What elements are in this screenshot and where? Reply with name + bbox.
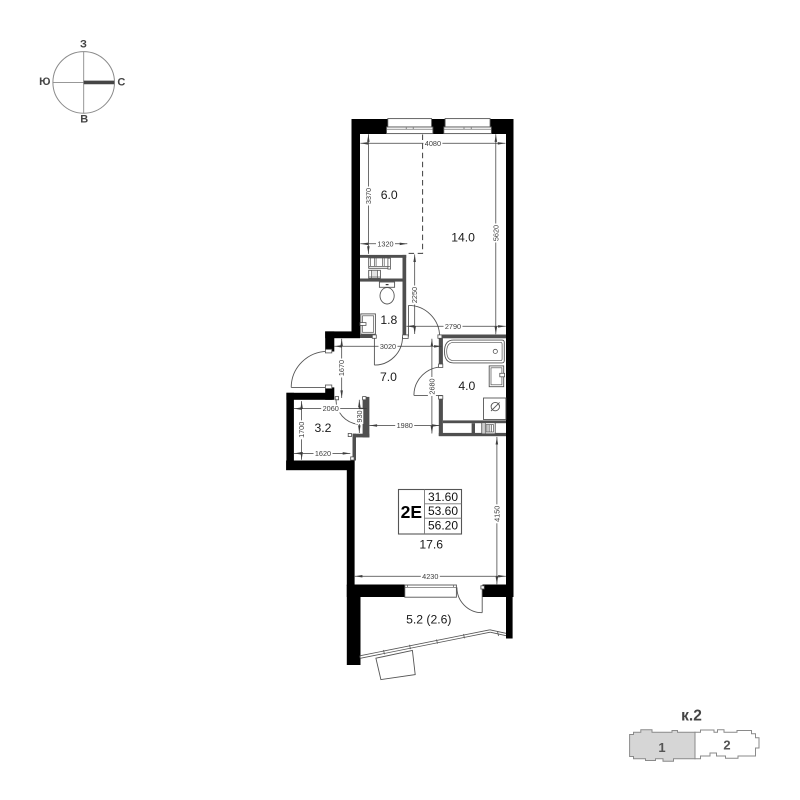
svg-text:14.0: 14.0 [451,231,475,245]
svg-text:1670: 1670 [337,360,346,376]
svg-text:3.2: 3.2 [315,421,332,435]
svg-text:2060: 2060 [323,404,339,413]
svg-text:4.0: 4.0 [458,379,475,393]
svg-text:930: 930 [355,410,364,422]
svg-text:3020: 3020 [380,342,396,351]
svg-text:4080: 4080 [425,139,441,148]
svg-text:5620: 5620 [491,225,500,241]
svg-text:53.60: 53.60 [428,504,458,518]
svg-text:17.6: 17.6 [419,538,443,552]
svg-text:4230: 4230 [422,572,438,581]
svg-text:к.2: к.2 [681,708,702,725]
svg-text:1.8: 1.8 [380,313,397,327]
svg-text:2250: 2250 [410,287,419,303]
svg-text:В: В [80,114,88,126]
svg-text:С: С [117,77,125,89]
svg-text:4150: 4150 [492,506,501,522]
svg-text:6.0: 6.0 [381,188,398,202]
svg-text:1320: 1320 [377,239,393,248]
svg-text:2Е: 2Е [401,502,422,522]
svg-text:З: З [80,39,87,51]
svg-text:2680: 2680 [427,378,436,394]
svg-text:1: 1 [658,740,665,755]
svg-text:56.20: 56.20 [428,519,458,533]
svg-text:2790: 2790 [445,322,461,331]
svg-text:1700: 1700 [297,422,306,438]
svg-text:7.0: 7.0 [380,370,397,384]
svg-text:Ю: Ю [39,76,50,88]
svg-text:2: 2 [723,738,730,753]
svg-text:3370: 3370 [364,188,373,204]
svg-text:5.2 (2.6): 5.2 (2.6) [406,613,451,627]
svg-text:31.60: 31.60 [428,490,458,504]
svg-text:1620: 1620 [315,449,331,458]
svg-text:1980: 1980 [397,421,413,430]
